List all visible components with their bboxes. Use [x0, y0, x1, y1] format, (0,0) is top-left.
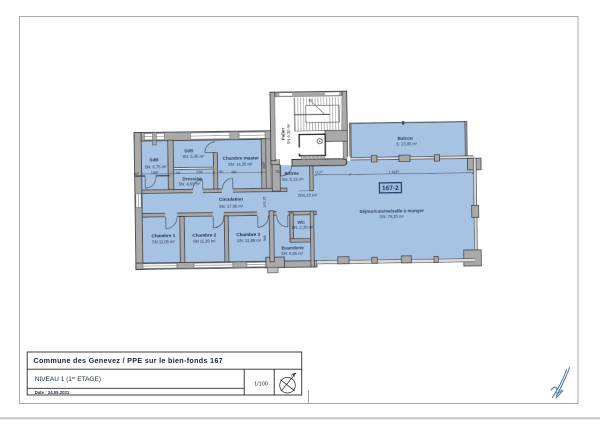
- svg-text:368: 368: [263, 235, 267, 241]
- svg-text:SN: 79,20 m²: SN: 79,20 m²: [380, 214, 405, 219]
- svg-text:SN: 2,35 m²: SN: 2,35 m²: [291, 225, 314, 230]
- svg-text:SN: 17,95 m²: SN: 17,95 m²: [219, 204, 244, 209]
- svg-text:Chambre 2: Chambre 2: [192, 233, 216, 238]
- svg-text:380: 380: [231, 170, 237, 174]
- svg-text:SN: 12,85 m²: SN: 12,85 m²: [237, 238, 262, 243]
- svg-text:Date : 24.05.2021: Date : 24.05.2021: [35, 390, 70, 395]
- svg-text:SdB: SdB: [149, 157, 159, 162]
- svg-text:Commune des Genevez / PPE sur: Commune des Genevez / PPE sur le bien-fo…: [34, 356, 223, 365]
- svg-text:S: 23,85 m²: S: 23,85 m²: [396, 141, 418, 146]
- svg-text:Séjour/cuisine/salle à manger: Séjour/cuisine/salle à manger: [359, 208, 424, 214]
- svg-text:167-2: 167-2: [382, 185, 399, 192]
- svg-text:SdB: SdB: [184, 148, 194, 153]
- svg-text:SN: 6,75 m²: SN: 6,75 m²: [145, 164, 168, 169]
- svg-text:NIVEAU 1 (1er ETAGE): NIVEAU 1 (1er ETAGE): [35, 375, 101, 383]
- svg-text:1/100: 1/100: [254, 381, 268, 387]
- svg-text:298: 298: [196, 170, 202, 174]
- svg-text:28: 28: [176, 171, 180, 175]
- svg-text:SN 6,30 m²: SN 6,30 m²: [286, 123, 291, 144]
- svg-text:30: 30: [219, 170, 223, 174]
- svg-text:Balcon: Balcon: [397, 136, 413, 141]
- svg-text:Chambre master: Chambre master: [223, 155, 260, 161]
- svg-text:SN: 4,60 m²: SN: 4,60 m²: [178, 181, 201, 186]
- svg-text:143,15: 143,15: [262, 197, 266, 208]
- svg-text:SN: 5,15 m²: SN: 5,15 m²: [282, 177, 305, 182]
- svg-text:28: 28: [275, 170, 279, 174]
- svg-text:SN: 14,25 m²: SN: 14,25 m²: [228, 161, 253, 166]
- svg-text:SN 11,30 m²: SN 11,30 m²: [193, 239, 216, 244]
- svg-text:Chambre 3: Chambre 3: [236, 232, 260, 237]
- svg-text:Circulation: Circulation: [219, 197, 243, 202]
- svg-text:Entrée: Entrée: [284, 171, 299, 176]
- svg-text:Chambre 1: Chambre 1: [151, 233, 175, 238]
- svg-text:SN: 5,45 m²: SN: 5,45 m²: [182, 154, 205, 159]
- svg-text:SN: 6,05 m²: SN: 6,05 m²: [281, 251, 304, 256]
- svg-text:204,10 m²: 204,10 m²: [298, 192, 318, 197]
- svg-text:SN 11,05 m²: SN 11,05 m²: [152, 239, 175, 244]
